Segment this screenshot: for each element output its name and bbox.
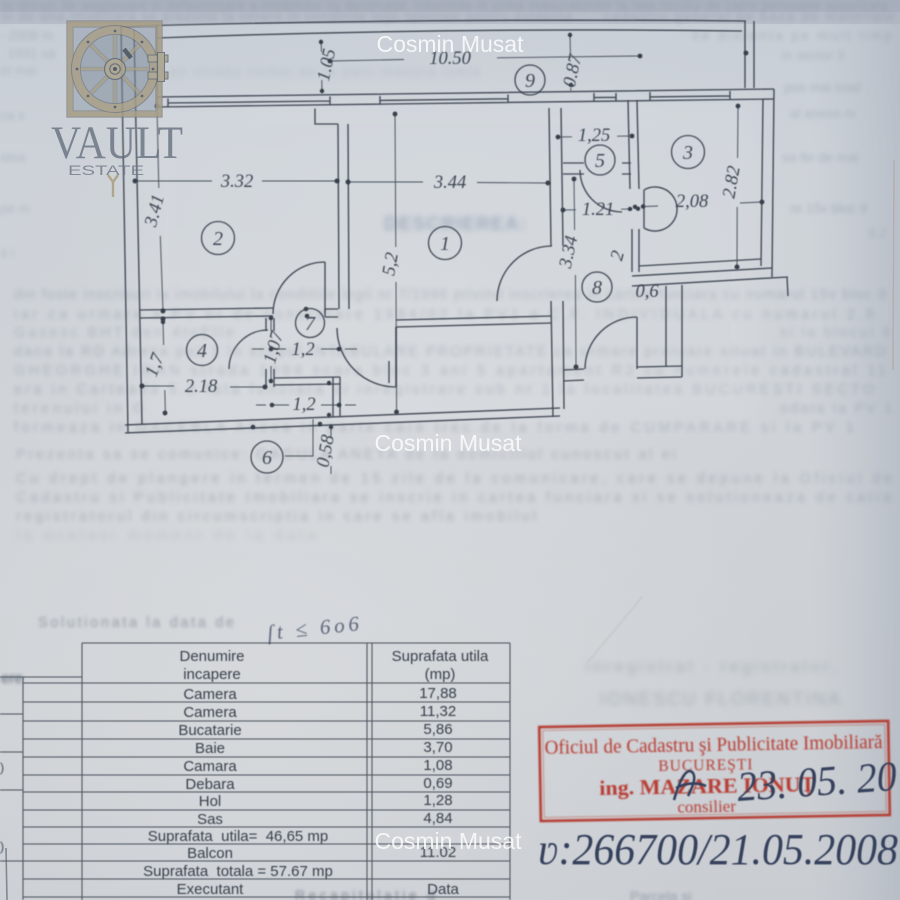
svg-text:Cosmin Musat: Cosmin Musat (377, 31, 525, 57)
svg-text:VAULT: VAULT (51, 117, 183, 169)
svg-text:Cosmin Musat: Cosmin Musat (375, 828, 523, 854)
svg-text:Cosmin Musat: Cosmin Musat (375, 430, 523, 456)
svg-text:ſt ≤ 6o6: ſt ≤ 6o6 (266, 611, 361, 645)
svg-text:ESTATE: ESTATE (68, 163, 144, 178)
svg-text:ʋ:266700/21.05.2008: ʋ:266700/21.05.2008 (538, 825, 898, 874)
svg-text:23. 05. 20: 23. 05. 20 (735, 754, 898, 811)
svg-text:consilier: consilier (677, 797, 736, 817)
svg-text:Oficiul de Cadastru şi Publici: Oficiul de Cadastru şi Publicitate Imobi… (544, 732, 883, 759)
